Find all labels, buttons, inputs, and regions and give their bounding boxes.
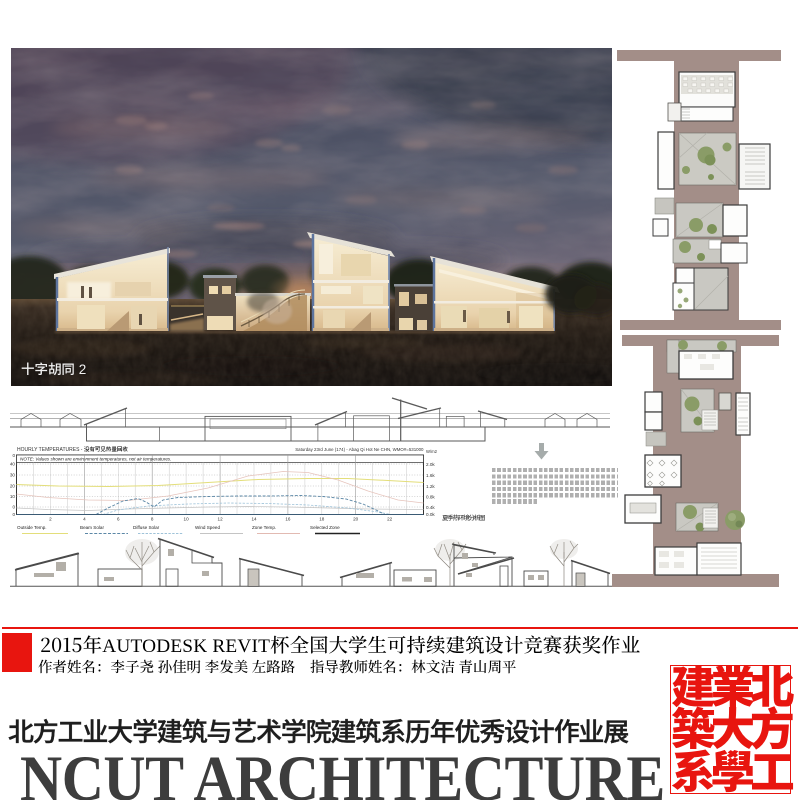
- svg-text:0: 0: [12, 512, 15, 517]
- svg-text:20: 20: [353, 517, 359, 522]
- svg-text:10: 10: [10, 494, 16, 499]
- svg-text:Zone Temp.: Zone Temp.: [252, 525, 276, 530]
- svg-text:4: 4: [83, 517, 86, 522]
- svg-text:0.0k: 0.0k: [426, 512, 435, 517]
- svg-text:10: 10: [184, 517, 190, 522]
- svg-text:12: 12: [218, 517, 224, 522]
- svg-text:0.8k: 0.8k: [426, 495, 435, 500]
- svg-text:0: 0: [12, 505, 15, 510]
- svg-text:W/m2: W/m2: [426, 449, 438, 454]
- svg-text:0: 0: [12, 453, 15, 458]
- svg-text:Wind Speed: Wind Speed: [195, 525, 220, 530]
- svg-text:30: 30: [10, 473, 16, 478]
- svg-text:Saturday 23rd June (174) - Aba: Saturday 23rd June (174) - Abag Qi Hot N…: [295, 447, 424, 452]
- svg-text:1.2k: 1.2k: [426, 484, 435, 489]
- svg-text:18: 18: [319, 517, 325, 522]
- svg-text:8: 8: [151, 517, 154, 522]
- svg-text:6: 6: [117, 517, 120, 522]
- svg-text:40: 40: [10, 462, 16, 467]
- svg-text:十字胡同 2: 十字胡同 2: [21, 358, 86, 378]
- svg-text:22: 22: [387, 517, 393, 522]
- svg-text:1.6k: 1.6k: [426, 473, 435, 478]
- svg-text:0.4k: 0.4k: [426, 505, 435, 510]
- svg-text:Beam Solar: Beam Solar: [80, 525, 104, 530]
- svg-text:2: 2: [49, 517, 52, 522]
- svg-text:20: 20: [10, 484, 16, 489]
- svg-text:Selected Zone: Selected Zone: [310, 525, 340, 530]
- svg-text:HOURLY TEMPERATURES - 没有可见热量回收: HOURLY TEMPERATURES - 没有可见热量回收: [17, 445, 128, 453]
- svg-text:2.0k: 2.0k: [426, 462, 435, 467]
- svg-text:Diffuse Solar: Diffuse Solar: [133, 525, 160, 530]
- svg-text:14: 14: [251, 517, 257, 522]
- svg-text:NOTE: Values shown are environ: NOTE: Values shown are environment tempe…: [20, 457, 172, 462]
- svg-text:16: 16: [285, 517, 291, 522]
- svg-text:Outside Temp.: Outside Temp.: [17, 525, 47, 530]
